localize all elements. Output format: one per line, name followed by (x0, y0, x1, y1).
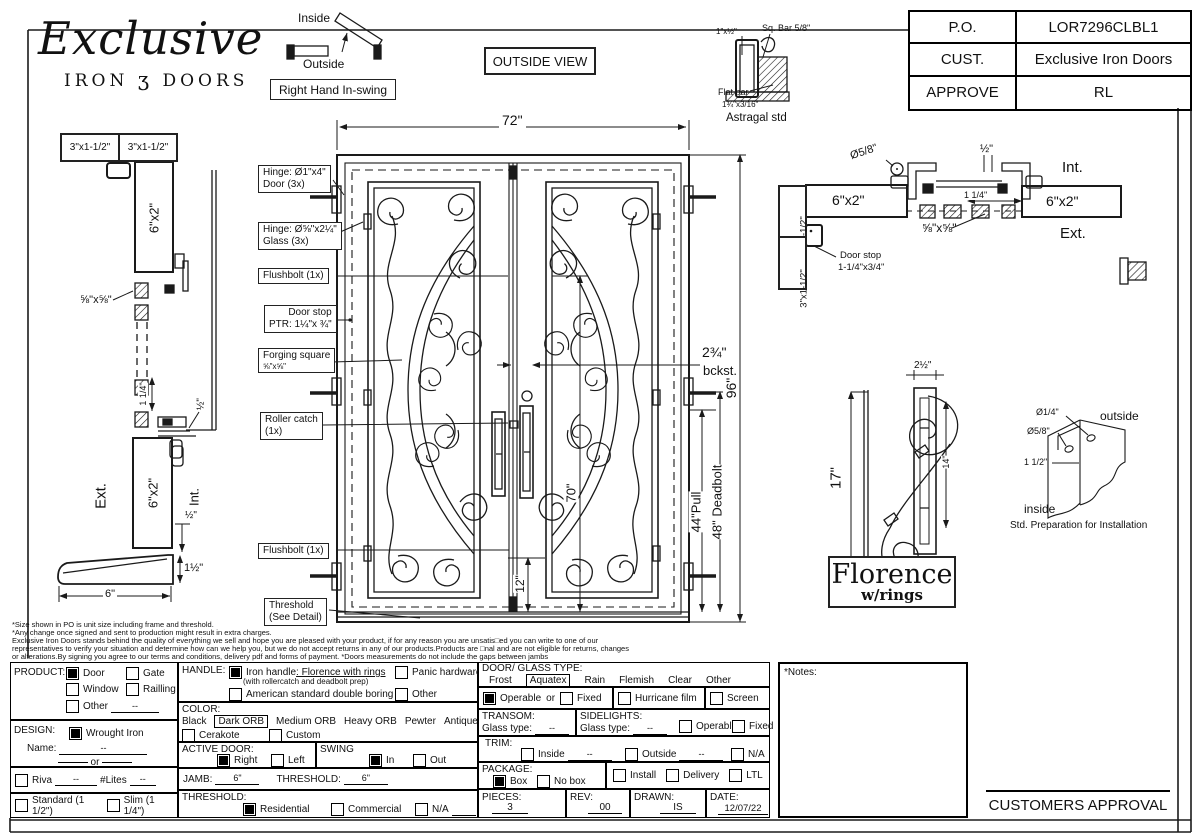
product-window-option[interactable]: Window (66, 683, 119, 696)
package-cell: PACKAGE: Box No box (478, 762, 606, 789)
color-black-option[interactable]: Black (182, 716, 206, 727)
color-options: Black Dark ORB Medium ORB Heavy ORB Pewt… (182, 715, 500, 728)
astragal-flatbar-size: 1¾"x3/16" (722, 101, 758, 110)
swing-outside-label: Outside (303, 58, 344, 71)
color-pewter-option[interactable]: Pewter (405, 716, 436, 727)
left-ext-label: Ext. (93, 483, 110, 509)
in-checkbox[interactable] (369, 754, 382, 767)
handle-other-checkbox[interactable] (395, 688, 408, 701)
screen-checkbox[interactable] (710, 692, 723, 705)
date-cell: DATE: 12/07/22 (706, 789, 770, 818)
design-name-row: Name:-- (27, 743, 150, 755)
riva-field[interactable]: -- (55, 774, 97, 786)
screen-cell: Screen (705, 687, 770, 709)
swing-label: SWING (320, 744, 354, 755)
install-option[interactable]: Install (613, 769, 656, 782)
date-label: DATE: (710, 792, 739, 803)
lites-field[interactable]: -- (130, 774, 156, 786)
notes-label: *Notes: (784, 667, 817, 678)
design-label: DESIGN: (14, 725, 55, 736)
sidelights-fixed-option[interactable]: Fixed (732, 720, 773, 733)
prep-dia1: Ø1/4" (1036, 407, 1059, 417)
transom-glass-field[interactable]: -- (535, 723, 569, 735)
astragal-caption: Astragal std (726, 112, 787, 125)
right-doorstop-size: 1-1/4"x3/4" (838, 263, 884, 274)
trim-outside-field[interactable]: -- (679, 749, 723, 761)
handle-other-option[interactable]: Other (395, 688, 437, 701)
right-114-dim: 1 1/4" (964, 190, 987, 200)
design-cell: DESIGN: Wrought Iron Name:-- or (10, 720, 178, 767)
swing-cell: SWING In Out (316, 742, 478, 768)
trim-inside-field[interactable]: -- (568, 749, 612, 761)
right-int-label: Int. (1062, 160, 1083, 177)
callout-roller-catch: Roller catch(1x) (260, 412, 323, 440)
swing-out-option[interactable]: Out (413, 754, 446, 767)
glass-other-option[interactable]: Other (706, 675, 731, 686)
prep-offset: 1 1/2" (1024, 457, 1047, 467)
rev-value[interactable]: 00 (588, 802, 622, 814)
logo-subtitle: IRON ʒ DOORS (64, 68, 248, 91)
rev-cell: REV: 00 (566, 789, 630, 818)
callout-flushbolt-top: Flushbolt (1x) (258, 268, 329, 284)
sidelights-operable-option[interactable]: Operable (679, 720, 737, 733)
left-tube-top-size: 6"x2" (147, 203, 162, 233)
ltl-option[interactable]: LTL (729, 769, 763, 782)
product-cell: PRODUCT: Door Gate Window Railling Other… (10, 662, 178, 720)
title-block: P.O.LOR7296CLBL1 CUST.Exclusive Iron Doo… (908, 10, 1192, 111)
pieces-value[interactable]: 3 (492, 802, 528, 814)
jamb-field[interactable]: 6" (215, 773, 259, 785)
transom-cell: TRANSOM: Glass type:-- (478, 709, 576, 736)
thickness-cell: Standard (1 1/2") Slim (1 1/4") (10, 793, 178, 818)
left-jamb1-label: 3"x1-1/2" (60, 133, 120, 162)
handle-name-box: Florence w/rings (828, 556, 956, 608)
jamb-cell: JAMB: 6" THRESHOLD: 6" (178, 768, 478, 790)
left-jamb-section (58, 162, 216, 602)
notes-box[interactable]: *Notes: (778, 662, 968, 818)
right-tube-left-size: 6"x2" (832, 193, 865, 209)
active-door-cell: ACTIVE DOOR: Right Left (178, 742, 316, 768)
callout-hinge-door: Hinge: Ø1"x4"Door (3x) (258, 165, 331, 193)
swing-hand-label: Right Hand In-swing (270, 79, 396, 100)
operable-cell: Operable or Fixed (478, 687, 613, 709)
cerakote-option[interactable]: Cerakote (182, 729, 240, 742)
threshold-cell: THRESHOLD: Residential Commercial N/A (178, 790, 478, 818)
iron-handle-checkbox[interactable] (229, 666, 242, 679)
door-height-dim: 96" (723, 378, 739, 399)
callout-hinge-glass: Hinge: Ø⅝"x2¼"Glass (3x) (258, 222, 342, 250)
handle-cell: HANDLE: Iron handle: Florence with rings… (178, 662, 478, 702)
railling-checkbox[interactable] (126, 683, 139, 696)
callout-forging-square: Forging square⅝"x⅝" (258, 348, 335, 373)
trim-outside-option[interactable]: Outside-- (625, 748, 726, 761)
glass-type-cell: DOOR/ GLASS TYPE: Frost Aquatex Rain Fle… (478, 662, 770, 687)
handle-width-dim: 2½" (914, 360, 931, 371)
bottom-rail-dim: 12" (513, 575, 527, 593)
pieces-cell: PIECES: 3 (478, 789, 566, 818)
window-checkbox[interactable] (66, 683, 79, 696)
trim-inside-checkbox[interactable] (521, 748, 534, 761)
american-option[interactable]: American standard double boring (229, 688, 393, 701)
po-value: LOR7296CLBL1 (1017, 12, 1190, 42)
transom-glass-row: Glass type:-- (482, 723, 572, 735)
logo-doors: DOORS (162, 71, 248, 91)
trim-cell: TRIM: Inside-- Outside-- N/A (478, 736, 770, 762)
hurricane-cell: Hurricane film (613, 687, 705, 709)
wrought-iron-checkbox[interactable] (69, 727, 82, 740)
active-left-option[interactable]: Left (271, 754, 305, 767)
ltl-checkbox[interactable] (729, 769, 742, 782)
right-doorstop-label: Door stop (840, 251, 881, 262)
backset-sub: bckst. (703, 364, 737, 379)
color-heavyorb-option[interactable]: Heavy ORB (344, 716, 397, 727)
drawing-sheet: Exclusive IRON ʒ DOORS Inside Outside Ri… (0, 0, 1200, 838)
date-value[interactable]: 12/07/22 (718, 803, 768, 815)
color-cell: COLOR: Black Dark ORB Medium ORB Heavy O… (178, 702, 478, 742)
riva-checkbox[interactable] (15, 774, 28, 787)
sidelights-glass-field[interactable]: -- (633, 723, 667, 735)
slim-checkbox[interactable] (107, 799, 120, 812)
package-label: PACKAGE: (482, 764, 532, 775)
product-door-option[interactable]: Door (66, 667, 105, 680)
door-width-dim: 72" (499, 113, 526, 129)
design-name-field[interactable]: -- (59, 743, 147, 755)
american-checkbox[interactable] (229, 688, 242, 701)
astragal-sqbar-label: Sq. Bar 5/8" (762, 23, 810, 33)
order-form: PRODUCT: Door Gate Window Railling Other… (10, 660, 770, 818)
right-ext-label: Ext. (1060, 226, 1086, 243)
logo-script: Exclusive (38, 14, 263, 64)
deadbolt-height-dim: 48" Deadbolt (710, 465, 725, 540)
outside-view-label: OUTSIDE VIEW (484, 47, 596, 75)
delivery-option[interactable]: Delivery (666, 769, 719, 782)
callout-flushbolt-bottom: Flushbolt (1x) (258, 543, 329, 559)
product-other-option[interactable]: Other-- (66, 700, 162, 713)
right-jamb2-label: 3"x1-1/2" (778, 236, 807, 290)
residential-checkbox[interactable] (243, 803, 256, 816)
glass-height-dim: 70" (564, 483, 579, 502)
left-jamb2-label: 3"x1-1/2" (118, 133, 178, 162)
left-checkbox[interactable] (271, 754, 284, 767)
riva-cell: Riva -- #Lites -- (10, 767, 178, 793)
drawn-value[interactable]: IS (660, 802, 696, 814)
sidelights-glass-row: Glass type:-- (580, 723, 670, 735)
product-other-field[interactable]: -- (111, 701, 159, 713)
panic-option[interactable]: Panic hardware (395, 666, 481, 679)
handle-inner-dim: 14" (941, 455, 951, 468)
prep-outside: outside (1100, 410, 1139, 423)
package-nobox-option[interactable]: No box (537, 775, 586, 788)
gate-checkbox[interactable] (126, 667, 139, 680)
prep-dia2: Ø5/8" (1027, 426, 1050, 436)
cust-value: Exclusive Iron Doors (1017, 44, 1190, 74)
glass-aquatex-option[interactable]: Aquatex (526, 674, 571, 687)
hurricane-checkbox[interactable] (618, 692, 631, 705)
product-label: PRODUCT: (14, 667, 65, 678)
backset-dim: 2¾" (702, 345, 726, 361)
right-forging-size: ⅝"x⅝" (922, 222, 957, 235)
threshold-na-checkbox[interactable] (415, 803, 428, 816)
handle-label: HANDLE: (182, 665, 225, 676)
trim-na-option[interactable]: N/A (731, 748, 765, 761)
left-forging-size: ⅝"x⅝" (80, 294, 112, 306)
package-box-option[interactable]: Box (493, 775, 527, 788)
cerakote-checkbox[interactable] (182, 729, 195, 742)
threshold-height-dim: 1½" (184, 562, 203, 574)
glass-clear-option[interactable]: Clear (668, 675, 692, 686)
box-checkbox[interactable] (493, 775, 506, 788)
active-right-option[interactable]: Right (217, 754, 257, 767)
right-tube-right-size: 6"x2" (1046, 194, 1079, 210)
pull-height-dim: 44"Pull (689, 492, 704, 533)
right-checkbox[interactable] (217, 754, 230, 767)
trim-inside-option[interactable]: Inside-- (521, 748, 615, 761)
install-checkbox[interactable] (613, 769, 626, 782)
design-wrought-option[interactable]: Wrought Iron (69, 727, 144, 740)
product-railling-option[interactable]: Railling (126, 683, 176, 696)
threshold-label: THRESHOLD: (182, 792, 246, 803)
approve-value: RL (1017, 77, 1190, 109)
left-int-label: Int. (187, 488, 202, 506)
prep-inside: inside (1024, 503, 1055, 516)
left-dim-half-top: ½" (196, 398, 207, 410)
delivery-checkbox[interactable] (666, 769, 679, 782)
left-dim-114: 1 1/4" (138, 382, 148, 405)
drawn-cell: DRAWN: IS (630, 789, 706, 818)
prep-caption: Std. Preparation for Installation (1010, 520, 1147, 531)
na-option[interactable]: N/A (415, 803, 479, 816)
glass-type-label: DOOR/ GLASS TYPE: (482, 663, 582, 674)
commercial-option[interactable]: Commercial (331, 803, 401, 816)
left-dim-half: ½" (185, 510, 197, 521)
customers-approval[interactable]: CUSTOMERS APPROVAL (986, 790, 1170, 814)
glass-flemish-option[interactable]: Flemish (619, 675, 654, 686)
delivery-cell: Install Delivery LTL (606, 762, 770, 789)
fixed-checkbox[interactable] (560, 692, 573, 705)
color-mediumorb-option[interactable]: Medium ORB (276, 716, 336, 727)
right-jamb1-label: 3"x1-1/2" (778, 185, 807, 238)
logo-iron: IRON (64, 71, 128, 91)
threshold-na-field[interactable] (452, 804, 476, 816)
jamb-label: JAMB: (183, 774, 212, 785)
trim-outside-checkbox[interactable] (625, 748, 638, 761)
operable-checkbox[interactable] (483, 692, 496, 705)
other-checkbox[interactable] (66, 700, 79, 713)
astragal-flatbar-label: Flat bar (718, 87, 749, 97)
cust-label: CUST. (910, 44, 1017, 74)
jamb-threshold-label: THRESHOLD: (276, 774, 340, 785)
door-checkbox[interactable] (66, 667, 79, 680)
astragal-tube-size: 1"x½" (716, 28, 737, 37)
glass-rain-option[interactable]: Rain (584, 675, 605, 686)
commercial-checkbox[interactable] (331, 803, 344, 816)
approve-label: APPROVE (910, 77, 1017, 109)
po-label: P.O. (910, 12, 1017, 42)
glass-options: Frost Aquatex Rain Flemish Clear Other (489, 674, 731, 687)
sidelights-cell: SIDELIGHTS: Glass type:-- Operable Fixed (576, 709, 770, 736)
panic-checkbox[interactable] (395, 666, 408, 679)
out-checkbox[interactable] (413, 754, 426, 767)
nobox-checkbox[interactable] (537, 775, 550, 788)
sidelights-label: SIDELIGHTS: (580, 711, 642, 722)
right-half-dim: ½" (980, 143, 993, 155)
color-darkorb-option[interactable]: Dark ORB (214, 715, 268, 728)
sidelights-fixed-checkbox[interactable] (732, 720, 745, 733)
residential-option[interactable]: Residential (243, 803, 309, 816)
custom-option[interactable]: Custom (269, 729, 320, 742)
trim-label: TRIM: (485, 738, 512, 749)
callout-door-stop: Door stopPTR: 1¼"x ¾" (264, 305, 337, 333)
iron-handle-subnote: (with rollercatch and deadbolt prep) (243, 678, 368, 687)
product-gate-option[interactable]: Gate (126, 667, 165, 680)
jamb-threshold-field[interactable]: 6" (344, 773, 388, 785)
sidelights-operable-checkbox[interactable] (679, 720, 692, 733)
glass-frost-option[interactable]: Frost (489, 675, 512, 686)
standard-checkbox[interactable] (15, 799, 28, 812)
door-elevation (310, 120, 746, 622)
swing-in-option[interactable]: In (369, 754, 394, 767)
handle-height-dim: 17" (828, 467, 845, 489)
color-label: COLOR: (182, 704, 220, 715)
transom-label: TRANSOM: (482, 711, 535, 722)
custom-checkbox[interactable] (269, 729, 282, 742)
prep-detail (1048, 416, 1125, 518)
swing-inside-label: Inside (298, 12, 330, 25)
left-tube-bot-size: 6"x2" (146, 478, 161, 508)
threshold-width-dim: 6" (103, 588, 117, 600)
trim-na-checkbox[interactable] (731, 748, 744, 761)
logo-scroll-glyph: ʒ (138, 67, 153, 91)
callout-threshold: Threshold(See Detail) (264, 598, 327, 626)
